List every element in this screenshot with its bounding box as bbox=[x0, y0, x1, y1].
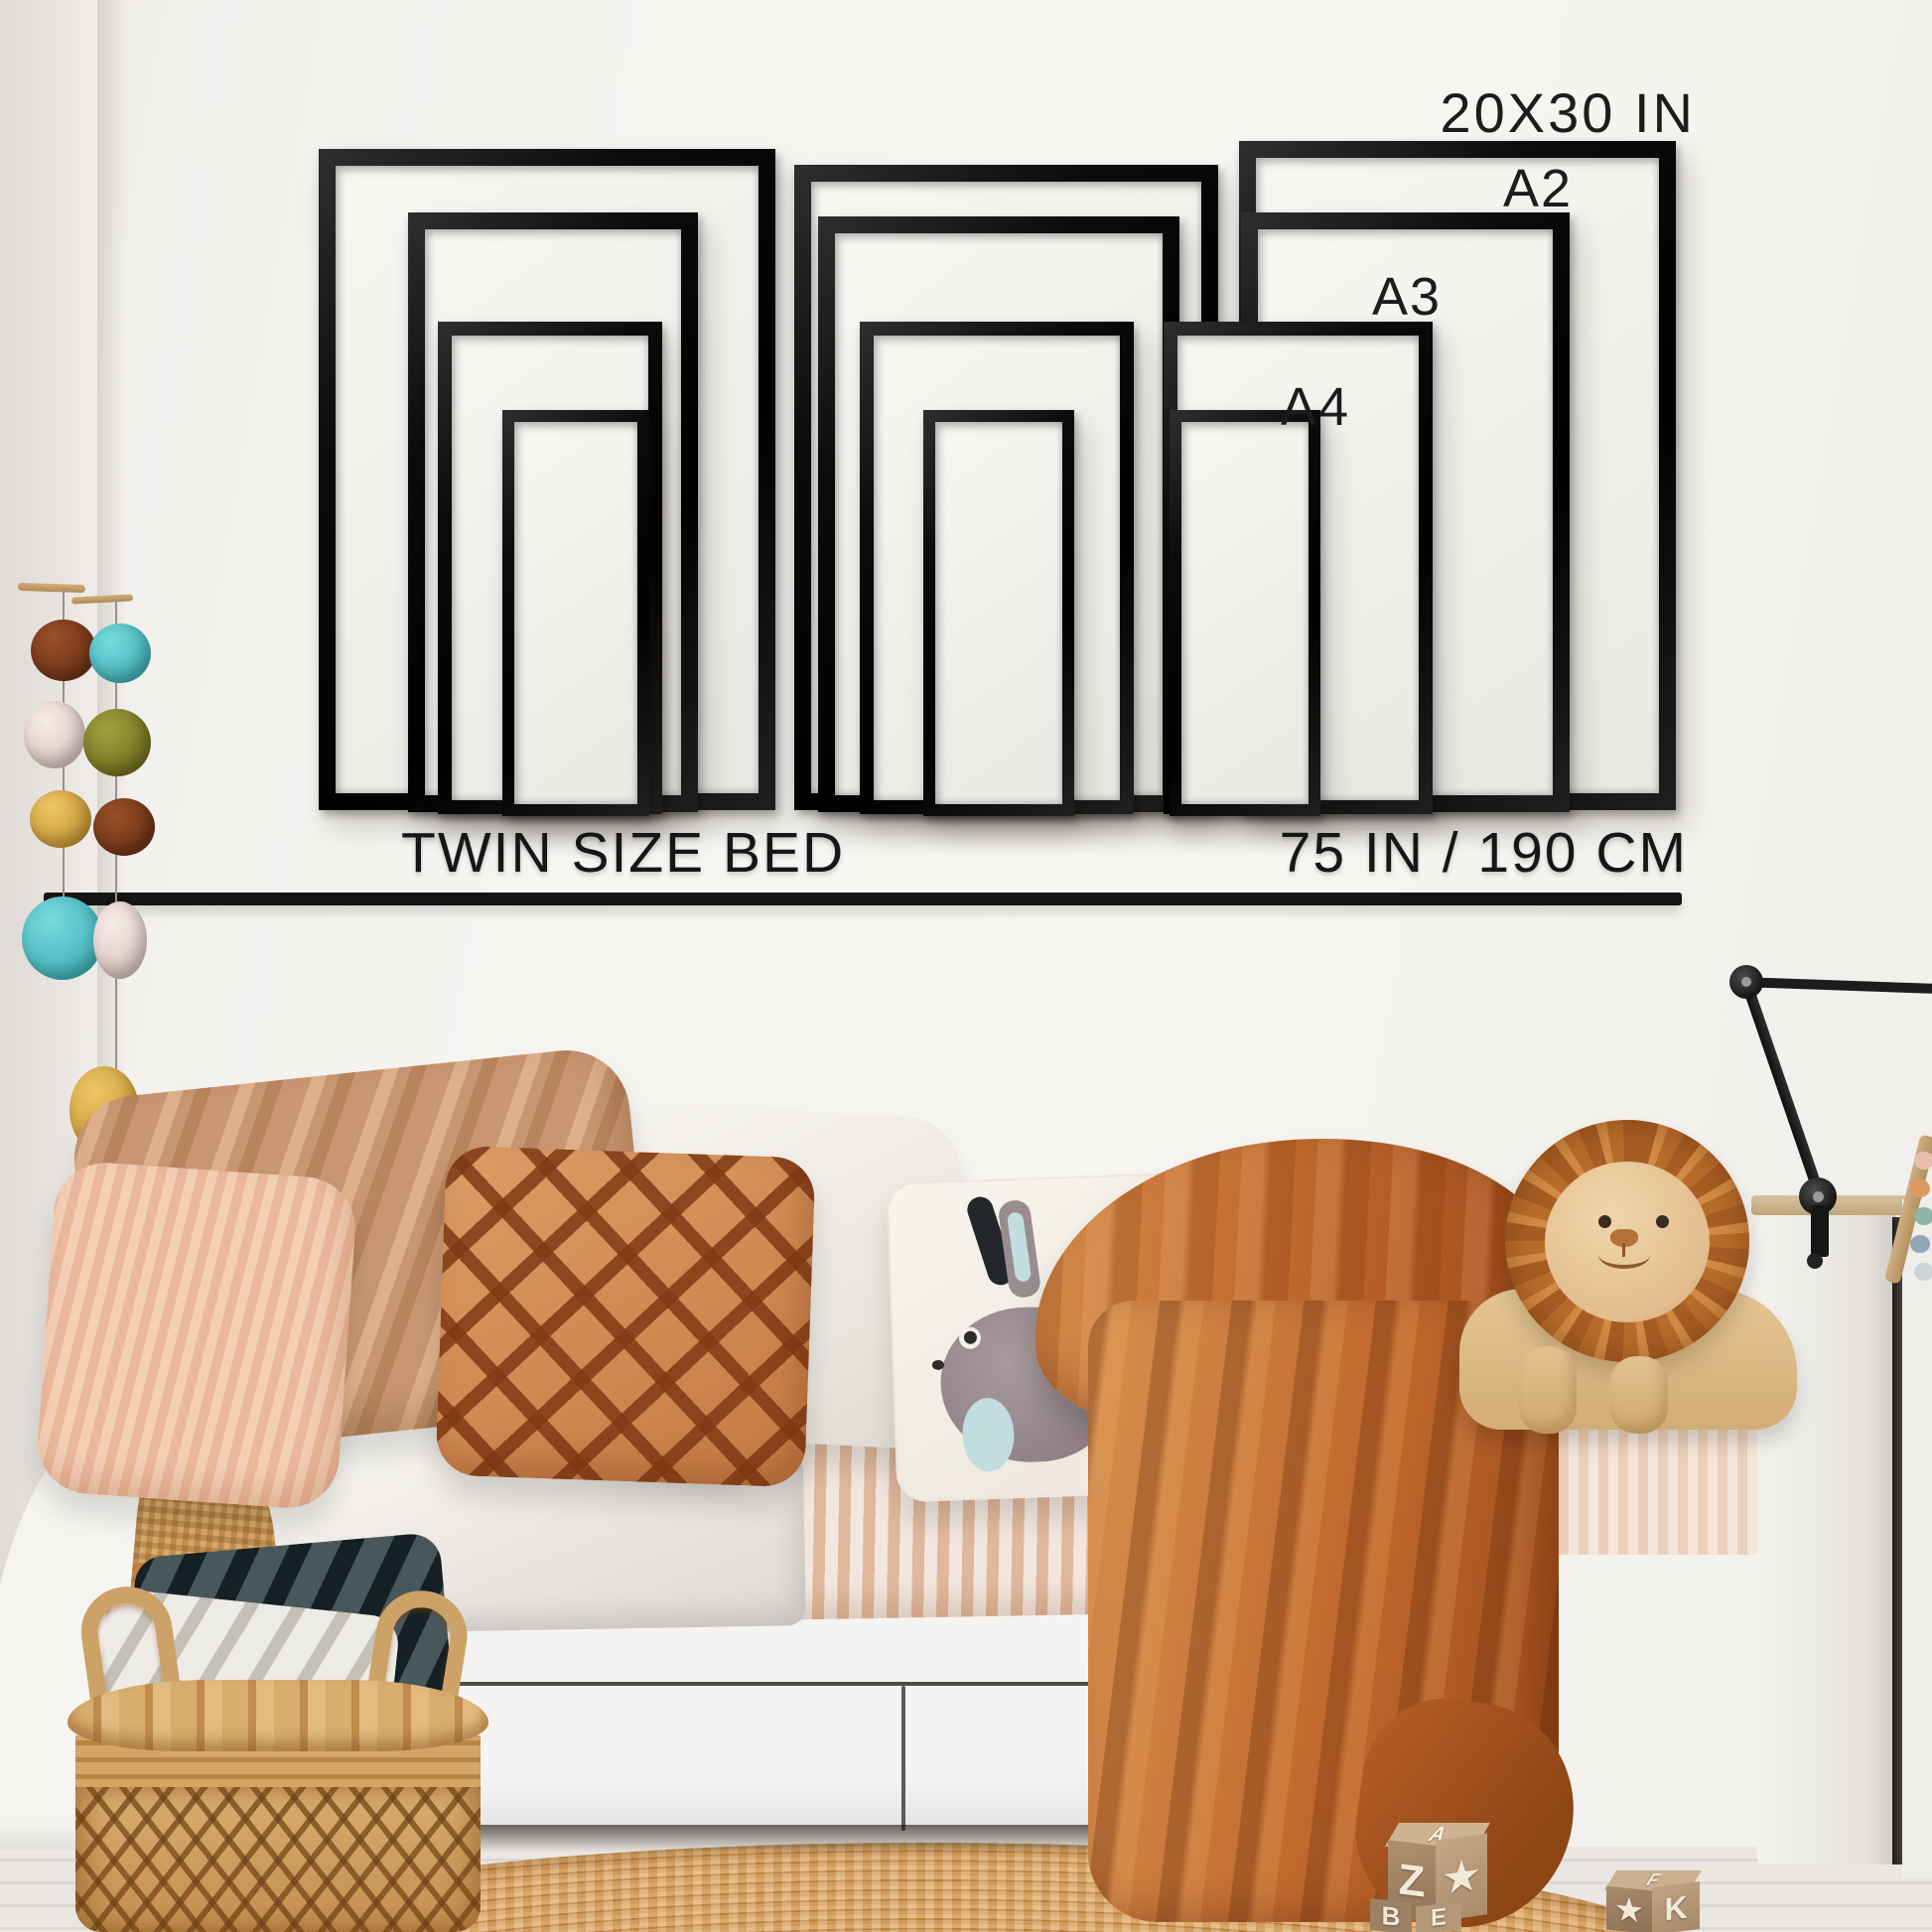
pom-pom-brown bbox=[93, 798, 155, 856]
frame-a4-col3 bbox=[1170, 410, 1320, 816]
pom-pom-brown bbox=[31, 620, 96, 681]
toy-block-star-face: ★ bbox=[1606, 1886, 1652, 1932]
drawer-seam-vertical bbox=[901, 1686, 905, 1831]
size-label-a4: A4 bbox=[1281, 380, 1350, 434]
size-guide-room-mockup: 20X30 IN A2 A3 A4 TWIN SIZE BED 75 IN / … bbox=[0, 0, 1932, 1932]
size-label-a3: A3 bbox=[1372, 270, 1442, 324]
bed-width-ruler-line bbox=[44, 893, 1682, 905]
abacus-bead-gray bbox=[1914, 1263, 1932, 1281]
abacus-bead-orange bbox=[1910, 1179, 1930, 1197]
size-label-20x30: 20X30 IN bbox=[1394, 85, 1696, 141]
size-label-a2: A2 bbox=[1503, 162, 1573, 215]
lion-eye bbox=[1656, 1215, 1669, 1228]
bunny-ear-inner bbox=[1007, 1211, 1033, 1283]
pom-pom-olive bbox=[83, 709, 151, 776]
lamp-joint-pin bbox=[1741, 977, 1751, 987]
bed-footboard bbox=[1757, 1203, 1896, 1864]
pom-pom-pink bbox=[93, 901, 147, 979]
basket-lattice-body bbox=[75, 1787, 481, 1932]
tufted-rust-pillow bbox=[435, 1146, 815, 1488]
bunny-pupil bbox=[964, 1330, 977, 1343]
footboard-wood-cap bbox=[1751, 1195, 1922, 1215]
abacus-bead-pink bbox=[1914, 1152, 1932, 1170]
peach-striped-pillow bbox=[35, 1160, 359, 1511]
toy-block-face: K bbox=[1652, 1881, 1700, 1932]
lamp-joint-pin bbox=[1813, 1191, 1824, 1202]
reference-item-label: TWIN SIZE BED bbox=[401, 825, 845, 882]
lion-mouth-stitch bbox=[1598, 1241, 1650, 1269]
lamp-clamp bbox=[1811, 1205, 1829, 1257]
frame-a4-col2 bbox=[923, 410, 1074, 816]
lion-eye bbox=[1598, 1215, 1611, 1228]
pom-pom-teal bbox=[22, 897, 103, 980]
lion-front-leg bbox=[1519, 1346, 1577, 1434]
pom-pom-pink bbox=[24, 701, 85, 768]
toy-block-face: E bbox=[1416, 1902, 1461, 1932]
lamp-clamp-knob bbox=[1807, 1253, 1823, 1269]
reference-dimension-label: 75 IN / 190 CM bbox=[1267, 825, 1688, 882]
frame-a4-col1 bbox=[502, 410, 649, 816]
desk-side bbox=[1902, 1199, 1932, 1878]
lion-front-leg bbox=[1610, 1356, 1668, 1434]
pom-pom-teal bbox=[89, 623, 151, 683]
abacus-bead-blue bbox=[1910, 1235, 1930, 1253]
basket-rim bbox=[68, 1680, 488, 1751]
toy-block-face: B bbox=[1370, 1898, 1412, 1932]
pom-pom-yellow bbox=[30, 790, 91, 848]
abacus-bead-teal bbox=[1914, 1207, 1932, 1225]
